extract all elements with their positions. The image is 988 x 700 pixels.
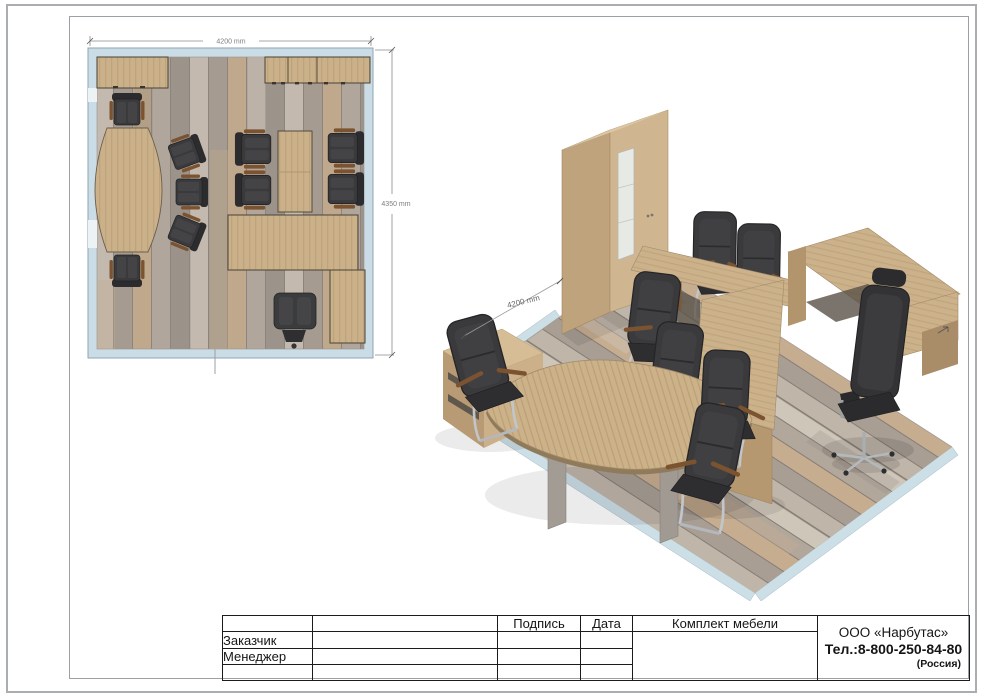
furniture-layout-drawing: 4200 mm 4350 mm [0, 0, 988, 700]
wardrobe-glass-door [618, 148, 634, 260]
title-block: Подпись Дата Комплект мебели ООО «Нарбут… [222, 615, 970, 681]
customer-signature-cell [498, 632, 581, 649]
wardrobe-handle [647, 215, 650, 218]
plan-window [88, 88, 97, 102]
plan-width-dimension: 4200 mm [216, 39, 245, 46]
plan-sideboard [97, 57, 168, 88]
iso-depth-dimension: 4200 mm [506, 293, 541, 310]
plan-window [88, 220, 97, 248]
company-phone: Тел.:8-800-250-84-80 [818, 641, 969, 658]
customer-value-cell [313, 632, 498, 649]
signature-column-header: Подпись [498, 616, 581, 632]
customer-row-label: Заказчик [223, 632, 313, 649]
plan-bench-desk [278, 131, 312, 212]
plan-wardrobe [265, 57, 370, 84]
title-block-cell [313, 616, 498, 632]
date-column-header: Дата [581, 616, 633, 632]
title-block-cell [313, 665, 498, 681]
company-country: (Россия) [818, 658, 969, 671]
plan-exec-desk [228, 215, 358, 270]
title-block-cell [223, 665, 313, 681]
furniture-set-body-cell [633, 632, 818, 681]
furniture-set-header: Комплект мебели [633, 616, 818, 632]
floor-plan-view: 4200 mm 4350 mm [87, 36, 411, 374]
plan-exec-return [330, 270, 365, 343]
drawing-canvas: 4200 mm 4350 mm [0, 0, 988, 700]
manager-value-cell [313, 649, 498, 665]
iso-view: 4200 mm [420, 110, 988, 620]
title-block-cell [581, 665, 633, 681]
company-info-cell: ООО «Нарбутас» Тел.:8-800-250-84-80 (Рос… [818, 616, 970, 681]
manager-row-label: Менеджер [223, 649, 313, 665]
exec-desk-panel [788, 246, 806, 326]
title-block-cell [498, 665, 581, 681]
plan-height-dimension: 4350 mm [381, 201, 410, 208]
plan-meeting-table [95, 128, 162, 252]
company-name: ООО «Нарбутас» [818, 625, 969, 641]
manager-date-cell [581, 649, 633, 665]
title-block-cell [223, 616, 313, 632]
manager-signature-cell [498, 649, 581, 665]
customer-date-cell [581, 632, 633, 649]
wardrobe-handle [651, 214, 654, 217]
